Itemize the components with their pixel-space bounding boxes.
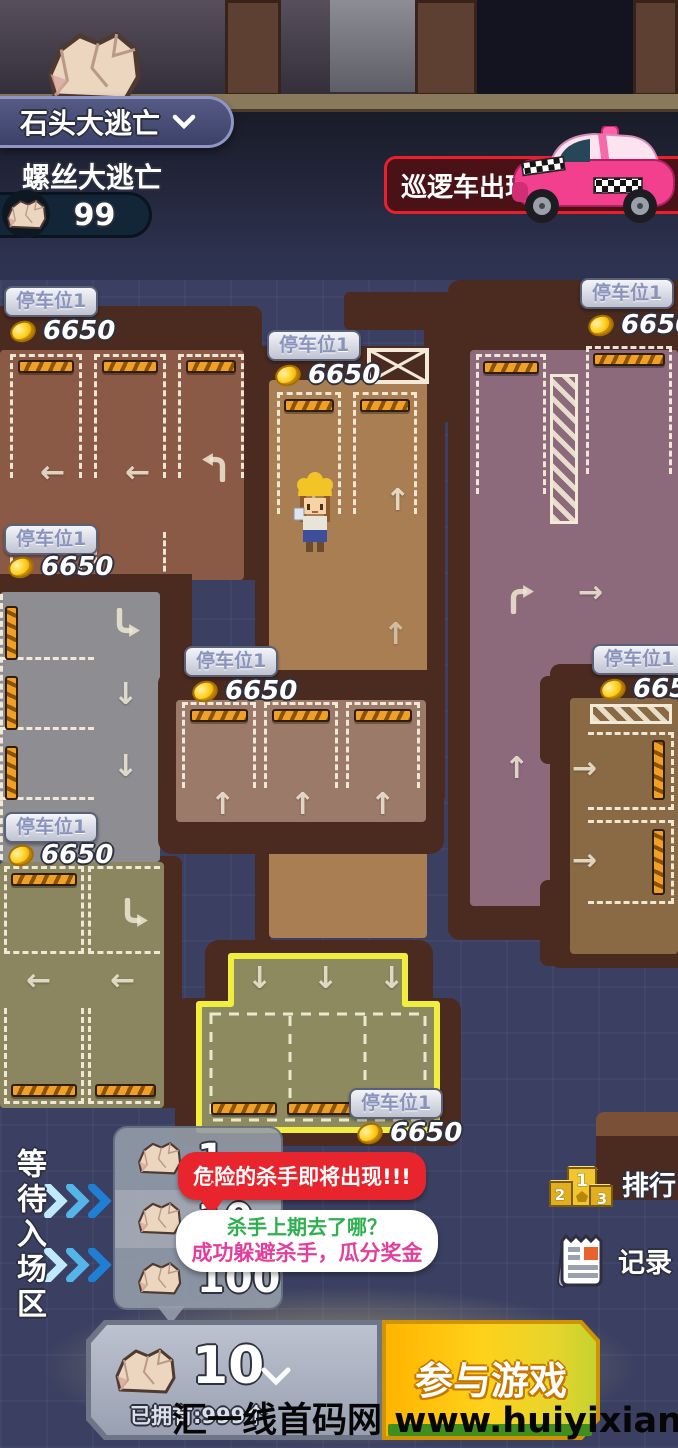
rock-icon <box>114 1346 178 1398</box>
speed-bump <box>95 1084 156 1097</box>
speed-bump <box>211 1102 277 1115</box>
arrow-turn-icon <box>200 452 230 482</box>
speed-bump <box>272 709 330 722</box>
rock-icon <box>137 1260 183 1298</box>
svg-text:2: 2 <box>555 1186 565 1204</box>
speed-bump <box>102 360 158 373</box>
speed-bump <box>287 1102 353 1115</box>
parking-spot <box>4 866 84 954</box>
coin-icon <box>189 677 220 705</box>
danger-bubble: 危险的杀手即将出现!!! <box>178 1152 426 1200</box>
speed-bump <box>354 709 412 722</box>
parking-lot[interactable]: ↑ ↑ ↑ 停车位1 6650 <box>158 644 446 856</box>
arrow-up-icon: ↑ <box>290 790 315 820</box>
speed-bump <box>652 740 665 800</box>
lot-reward: 6650 <box>10 316 115 346</box>
speed-bump <box>5 746 18 800</box>
lot-label: 停车位1 <box>592 644 678 675</box>
parking-spot <box>476 354 546 494</box>
arrow-left-icon: ← <box>26 966 51 996</box>
notepad-icon <box>552 1229 608 1291</box>
coin-icon <box>5 841 36 869</box>
speed-bump <box>186 360 236 373</box>
subtitle: 螺丝大逃亡 <box>22 156 162 196</box>
arrow-right-icon: → <box>578 578 603 608</box>
lot-label: 停车位1 <box>267 330 361 361</box>
arrow-up-icon: ↑ <box>370 790 395 820</box>
arrow-down-icon: ↓ <box>113 680 138 710</box>
arrow-left-icon: ← <box>110 966 135 996</box>
arrow-turn-icon <box>112 608 142 638</box>
parking-spot <box>588 820 674 904</box>
parking-lot-highlighted[interactable]: ↓ ↓ ↓ 停车位1 6650 <box>175 936 467 1152</box>
info-bubble-reward: 成功躲避杀手，瓜分奖金 <box>192 1240 423 1266</box>
barrier-icon <box>550 374 578 524</box>
rock-icon <box>6 198 48 232</box>
stake-value: 10 <box>192 1336 264 1396</box>
svg-text:3: 3 <box>597 1190 607 1208</box>
speed-bump <box>11 1084 77 1097</box>
lot-wall <box>540 880 566 966</box>
arrow-left-icon: ← <box>40 458 65 488</box>
game-screen: ← ← 停车位1 6650 ↑ ↑ ↑ 停车位1 6650 → ↑ 停车位1 6… <box>0 0 678 1448</box>
arrow-right-icon: → <box>572 846 597 876</box>
parking-lot[interactable]: → → 停车位1 6650 <box>540 636 678 968</box>
wall-pillar <box>633 0 678 96</box>
coin-icon <box>5 553 36 581</box>
lot-reward: 6650 <box>8 840 113 870</box>
speed-bump <box>18 360 74 373</box>
danger-bubble-text: 危险的杀手即将出现!!! <box>193 1161 411 1191</box>
rock-icon <box>137 1140 183 1178</box>
chevrons-icon <box>44 1248 120 1282</box>
wall-pillar <box>225 0 281 96</box>
coin-icon <box>597 675 628 703</box>
lot-reward: 6650 <box>192 676 297 706</box>
svg-text:1: 1 <box>576 1171 588 1191</box>
chevron-down-icon <box>260 1366 292 1388</box>
parking-lot[interactable]: ← ← 停车位1 6650 <box>0 806 182 1108</box>
lot-label: 停车位1 <box>349 1088 443 1119</box>
arrow-down-icon: ↓ <box>113 752 138 782</box>
parking-spot <box>588 732 674 810</box>
barrier-icon <box>590 704 672 724</box>
patrol-car <box>506 126 678 228</box>
coin-icon <box>354 1119 385 1147</box>
coin-icon <box>272 361 303 389</box>
ranking-label: 排行 <box>622 1164 676 1203</box>
parking-spot <box>88 1008 160 1104</box>
speed-bump <box>190 709 248 722</box>
lot-label: 停车位1 <box>580 278 674 309</box>
player-character <box>290 468 340 560</box>
lot-reward: 6650 <box>275 360 380 390</box>
speed-bump <box>593 353 665 366</box>
lot-reward: 6650 <box>588 310 678 340</box>
speed-bump <box>5 676 18 730</box>
game-mode-dropdown[interactable]: 石头大逃亡 <box>0 96 234 148</box>
speed-bump <box>652 829 665 895</box>
speed-bump <box>5 606 18 660</box>
arrow-up-icon: ↑ <box>504 754 529 784</box>
coin-icon <box>7 317 38 345</box>
arrow-down-icon: ↓ <box>313 964 338 994</box>
arrow-turn-icon <box>506 584 536 614</box>
wall-pillar <box>415 0 477 96</box>
arrow-right-icon: → <box>572 754 597 784</box>
rock-count-value: 99 <box>74 198 116 233</box>
ranking-button[interactable]: 1 2 3 排行 <box>548 1152 678 1214</box>
lot-reward: 6650 <box>357 1118 462 1148</box>
lot-reward: 6650 <box>8 552 113 582</box>
speed-bump <box>360 399 410 412</box>
lot-wall <box>540 676 566 764</box>
chevrons-icon <box>44 1184 120 1218</box>
podium-icon: 1 2 3 <box>548 1154 614 1212</box>
arrow-down-icon: ↓ <box>379 964 404 994</box>
parking-spot <box>586 346 672 474</box>
arrow-up-icon: ↑ <box>385 486 410 516</box>
waiting-zone-label: 等待入场区 <box>6 1148 50 1348</box>
arrow-up-icon: ↑ <box>210 790 235 820</box>
watermark: 汇一线首码网 www.huiyixian.com <box>172 1392 678 1443</box>
lot-label: 停车位1 <box>4 524 98 555</box>
arrow-turn-icon <box>120 898 150 928</box>
lot-reward: 6650 <box>600 674 678 704</box>
speed-bump <box>284 399 334 412</box>
info-bubble: 杀手上期去了哪？ 成功躲避杀手，瓜分奖金 <box>176 1210 438 1272</box>
record-button[interactable]: 记录 <box>552 1228 678 1292</box>
arrow-left-icon: ← <box>125 458 150 488</box>
lot-label: 停车位1 <box>4 286 98 317</box>
game-mode-label: 石头大逃亡 <box>20 102 160 142</box>
parking-spot <box>264 702 338 788</box>
arrow-down-icon: ↓ <box>247 964 272 994</box>
coin-icon <box>585 311 616 339</box>
chevron-down-icon <box>172 114 196 130</box>
parking-spot <box>346 702 420 788</box>
info-bubble-question: 杀手上期去了哪？ <box>227 1215 387 1240</box>
speed-bump <box>483 361 539 374</box>
wall-panel <box>330 0 418 92</box>
lot-label: 停车位1 <box>184 646 278 677</box>
parking-spot <box>182 702 256 788</box>
record-label: 记录 <box>618 1241 672 1280</box>
parking-spot <box>4 1008 84 1104</box>
speed-bump <box>11 873 77 886</box>
lot-label: 停车位1 <box>4 812 98 843</box>
